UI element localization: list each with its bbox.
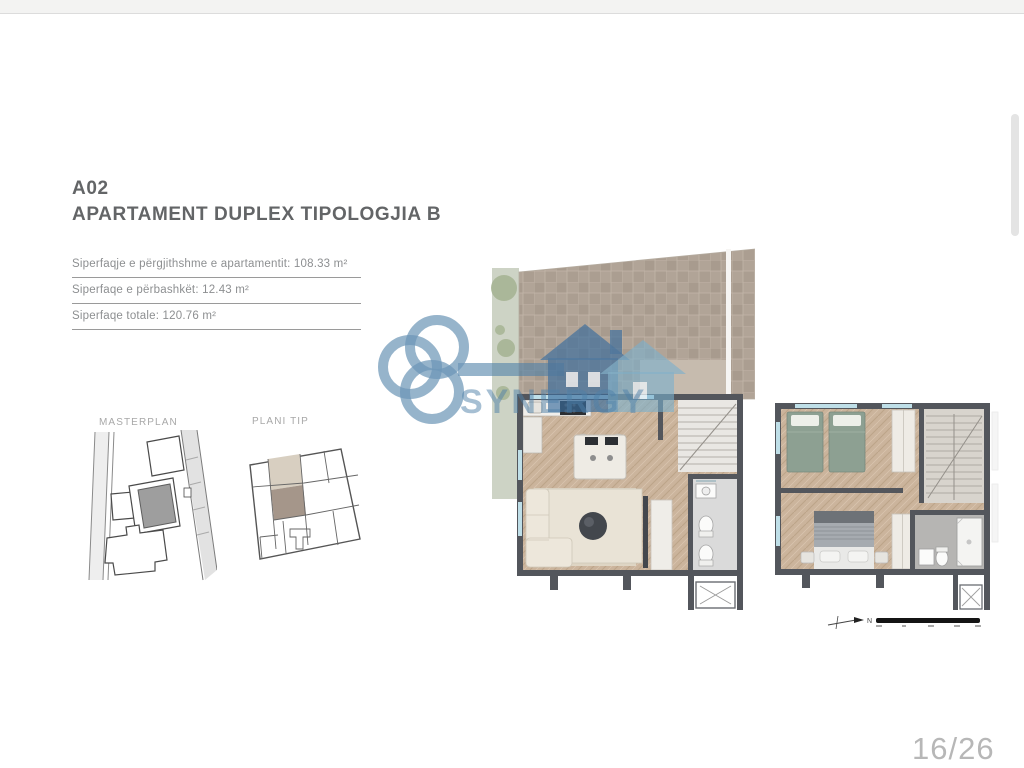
page-title: APARTAMENT DUPLEX TIPOLOGJIA B — [72, 202, 441, 228]
coffee-table — [579, 512, 607, 540]
scrollbar-thumb[interactable] — [1011, 114, 1019, 236]
window — [882, 404, 912, 408]
apartment-code: A02 — [72, 176, 441, 202]
plani-tip-label: PLANI TIP — [252, 416, 309, 427]
bathroom-sink — [919, 549, 934, 565]
dining-table — [574, 435, 626, 479]
twin-bedroom — [787, 410, 915, 472]
pillow — [833, 415, 861, 426]
window — [518, 502, 522, 536]
headboard — [814, 511, 874, 524]
window — [776, 516, 780, 546]
window — [776, 422, 780, 454]
sofa-chaise — [526, 538, 572, 567]
page: A02 APARTAMENT DUPLEX TIPOLOGJIA B Siper… — [0, 0, 1024, 768]
scale-bar-rule — [876, 618, 980, 623]
area-info-list: Siperfaqje e përgjithshme e apartamentit… — [72, 252, 361, 330]
key-rings — [383, 320, 464, 419]
pillow — [848, 551, 868, 562]
elevator-shaft — [688, 576, 743, 610]
masterplan-label: MASTERPLAN — [99, 417, 178, 428]
toilet — [936, 550, 948, 566]
sideboard — [651, 500, 672, 570]
window — [518, 450, 522, 480]
scale-bar: N — [826, 609, 998, 635]
upper-floor-plan — [770, 392, 1000, 620]
north-arrow-icon: N — [828, 616, 872, 629]
highlighted-unit-lower — [271, 485, 306, 520]
title-block: A02 APARTAMENT DUPLEX TIPOLOGJIA B — [72, 176, 441, 228]
page-number: 16/26 — [912, 731, 995, 767]
neighbor-ghost — [992, 412, 998, 542]
stool — [875, 552, 888, 563]
pillow — [820, 551, 840, 562]
dining-set — [574, 434, 626, 479]
area-common: Siperfaqe e përbashkët: 12.43 m² — [72, 278, 361, 304]
area-total-apartment: Siperfaqje e përgjithshme e apartamentit… — [72, 252, 361, 278]
tv-panel — [643, 496, 648, 568]
scale-ticks — [876, 625, 981, 627]
area-grand-total: Siperfaqe totale: 120.76 m² — [72, 304, 361, 330]
building-outline — [250, 449, 360, 559]
stool — [801, 552, 814, 563]
highlighted-building — [138, 484, 176, 528]
window — [795, 404, 857, 408]
pillow — [791, 415, 819, 426]
masterplan-buildings — [105, 436, 191, 575]
plani-tip-thumbnail — [238, 441, 370, 567]
masterplan-thumbnail — [85, 430, 217, 582]
ground-bathroom — [696, 481, 716, 566]
north-label: N — [867, 618, 872, 625]
synergy-wordmark: SYNERGY — [460, 383, 647, 422]
master-bedroom — [801, 511, 913, 569]
browser-top-strip — [0, 0, 1024, 14]
tree-icon — [491, 275, 517, 301]
upper-elevator — [953, 575, 990, 610]
